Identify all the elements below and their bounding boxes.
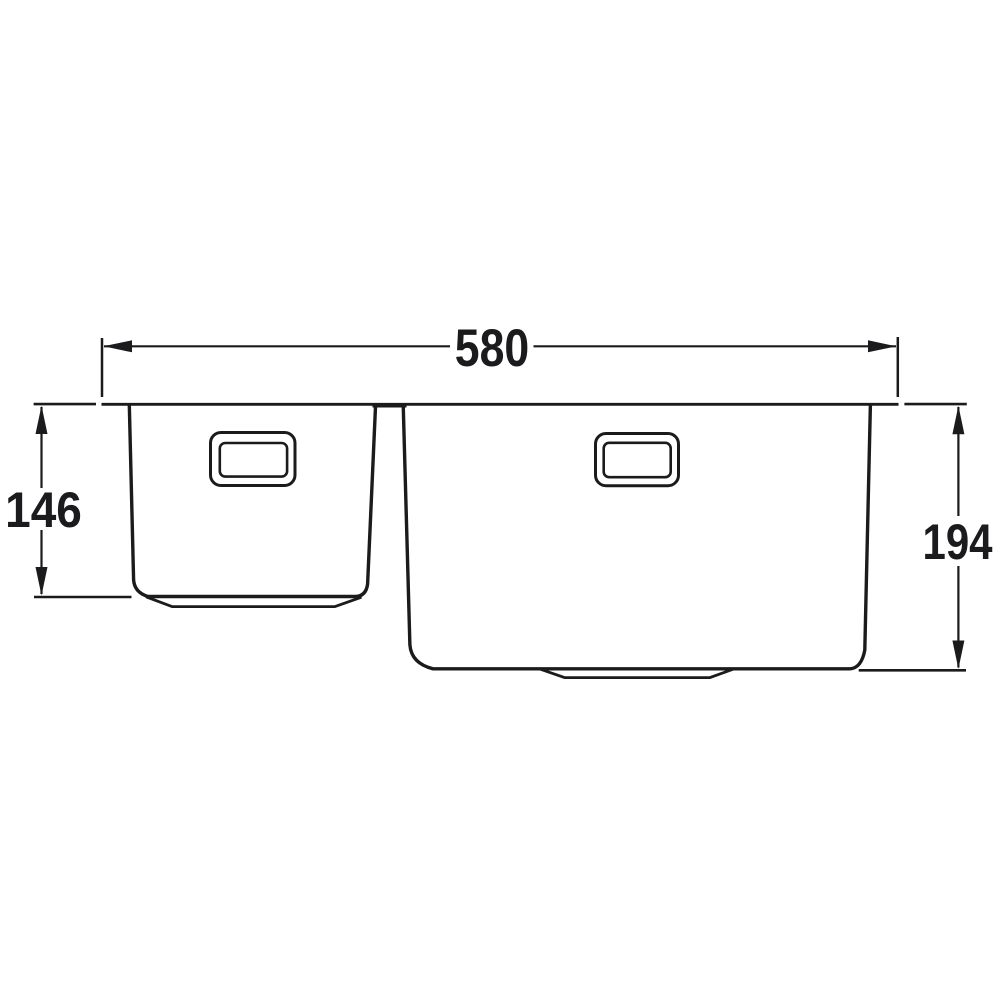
svg-text:146: 146 bbox=[5, 483, 82, 538]
svg-text:194: 194 bbox=[922, 514, 992, 570]
svg-text:580: 580 bbox=[455, 320, 529, 378]
